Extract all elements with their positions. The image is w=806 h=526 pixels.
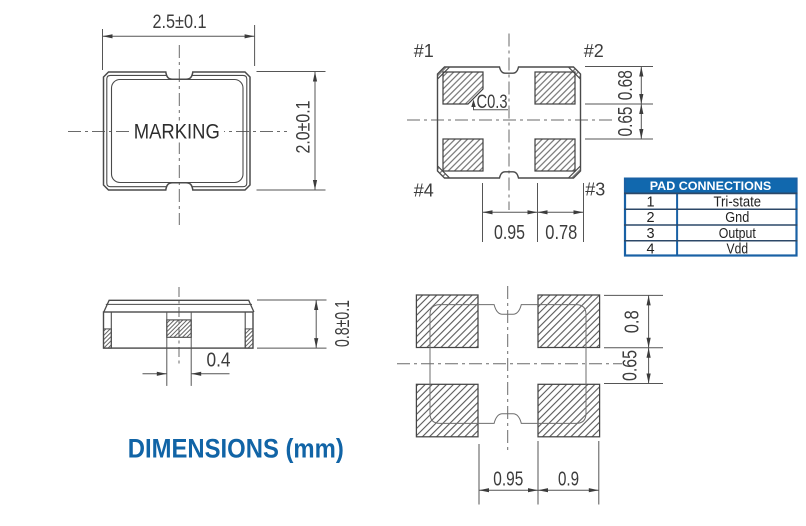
svg-text:2.5±0.1: 2.5±0.1 (153, 12, 207, 33)
svg-text:2.0±0.1: 2.0±0.1 (294, 101, 315, 154)
svg-text:2: 2 (646, 210, 654, 226)
svg-text:0.68: 0.68 (615, 70, 637, 100)
svg-text:Vdd: Vdd (727, 242, 749, 258)
svg-text:0.65: 0.65 (620, 350, 642, 381)
svg-text:4: 4 (646, 242, 654, 258)
svg-text:0.8±0.1: 0.8±0.1 (332, 300, 354, 347)
svg-text:0.95: 0.95 (493, 469, 523, 491)
svg-text:1: 1 (646, 194, 654, 210)
svg-text:0.65: 0.65 (615, 107, 637, 137)
svg-text:#3: #3 (585, 180, 605, 200)
svg-text:DIMENSIONS (mm): DIMENSIONS (mm) (128, 434, 344, 464)
svg-text:C0.3: C0.3 (477, 92, 508, 113)
svg-text:PAD CONNECTIONS: PAD CONNECTIONS (650, 181, 772, 193)
svg-text:#4: #4 (414, 181, 434, 201)
svg-text:3: 3 (646, 226, 654, 242)
svg-text:Tri-state: Tri-state (714, 194, 762, 210)
svg-text:0.9: 0.9 (558, 469, 579, 491)
svg-text:0.95: 0.95 (494, 222, 525, 244)
svg-text:Gnd: Gnd (725, 210, 749, 226)
svg-text:0.4: 0.4 (207, 350, 231, 372)
svg-text:Output: Output (719, 226, 756, 242)
svg-text:0.8: 0.8 (622, 310, 644, 333)
svg-text:#2: #2 (584, 41, 604, 61)
svg-text:#1: #1 (414, 41, 434, 61)
svg-text:MARKING: MARKING (134, 120, 220, 144)
svg-text:0.78: 0.78 (545, 222, 577, 244)
